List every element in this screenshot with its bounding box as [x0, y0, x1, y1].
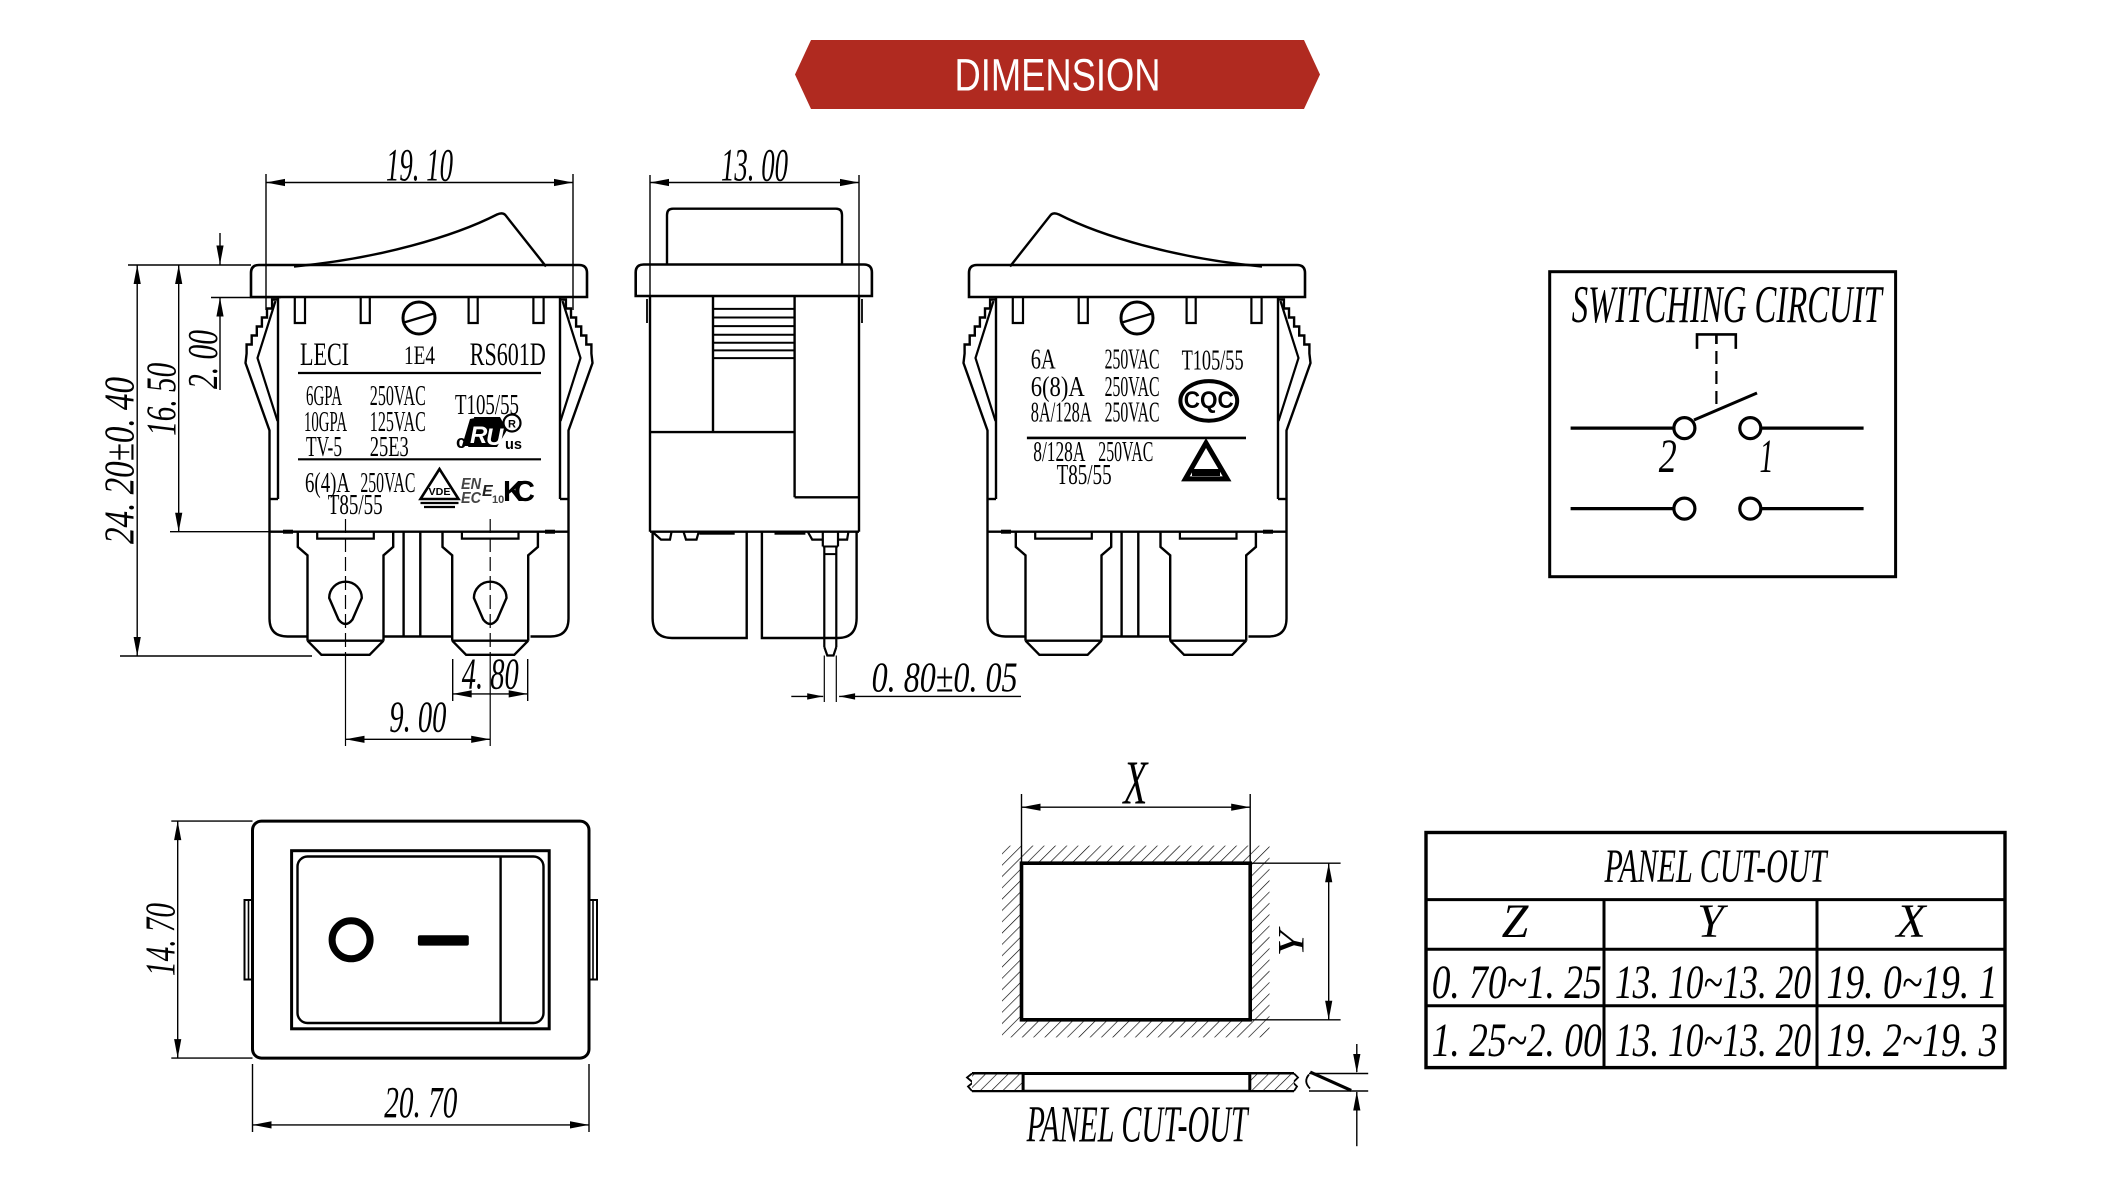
svg-text:0. 70~1. 25: 0. 70~1. 25 — [1432, 956, 1602, 1009]
svg-text:250VAC: 250VAC — [1105, 344, 1160, 375]
svg-text:T105/55: T105/55 — [455, 390, 519, 421]
svg-text:13. 00: 13. 00 — [721, 140, 788, 192]
svg-text:13. 10~13. 20: 13. 10~13. 20 — [1615, 956, 1811, 1009]
svg-text:PANEL CUT-OUT: PANEL CUT-OUT — [1026, 1097, 1249, 1154]
svg-text:16. 50: 16. 50 — [140, 363, 186, 436]
svg-text:19. 0~19. 1: 19. 0~19. 1 — [1827, 956, 1998, 1009]
svg-text:RS601D: RS601D — [470, 337, 546, 373]
svg-text:1. 25~2. 00: 1. 25~2. 00 — [1432, 1014, 1602, 1067]
svg-text:2: 2 — [1659, 430, 1677, 483]
svg-text:SWITCHING CIRCUIT: SWITCHING CIRCUIT — [1572, 276, 1884, 334]
svg-text:4. 80: 4. 80 — [462, 650, 519, 699]
svg-text:LECI: LECI — [300, 337, 349, 373]
svg-text:13. 10~13. 20: 13. 10~13. 20 — [1615, 1014, 1811, 1067]
svg-text:us: us — [505, 436, 522, 453]
svg-text:X: X — [1121, 750, 1148, 818]
svg-text:1E4: 1E4 — [404, 341, 435, 370]
svg-text:1: 1 — [1760, 430, 1774, 483]
svg-text:VDE: VDE — [429, 487, 451, 498]
svg-text:Z: Z — [1502, 895, 1530, 948]
svg-text:C: C — [514, 476, 535, 508]
svg-text:19. 2~19. 3: 19. 2~19. 3 — [1827, 1014, 1998, 1067]
svg-text:CQC: CQC — [1184, 387, 1234, 414]
svg-text:Y: Y — [1272, 926, 1313, 956]
svg-text:T85/55: T85/55 — [328, 490, 383, 521]
svg-text:R: R — [508, 419, 516, 431]
svg-text:6A: 6A — [1031, 344, 1057, 375]
svg-text:T85/55: T85/55 — [1057, 460, 1112, 491]
svg-text:24. 20±0. 40: 24. 20±0. 40 — [98, 377, 144, 544]
svg-text:X: X — [1894, 895, 1927, 948]
svg-text:9. 00: 9. 00 — [389, 693, 446, 742]
svg-text:250VAC: 250VAC — [1105, 397, 1160, 428]
svg-text:PANEL CUT-OUT: PANEL CUT-OUT — [1604, 840, 1829, 893]
svg-text:2. 00: 2. 00 — [181, 330, 227, 389]
svg-text:Y: Y — [1697, 895, 1728, 948]
svg-text:0. 80±0. 05: 0. 80±0. 05 — [872, 656, 1018, 702]
svg-text:EC: EC — [461, 490, 481, 507]
svg-text:19. 10: 19. 10 — [386, 140, 453, 192]
svg-text:U: U — [486, 424, 504, 451]
svg-text:14. 70: 14. 70 — [139, 903, 185, 976]
svg-text:20. 70: 20. 70 — [384, 1078, 457, 1127]
svg-text:T105/55: T105/55 — [1182, 346, 1244, 377]
svg-text:8A/128A: 8A/128A — [1031, 397, 1092, 428]
svg-text:DIMENSION: DIMENSION — [955, 50, 1161, 101]
